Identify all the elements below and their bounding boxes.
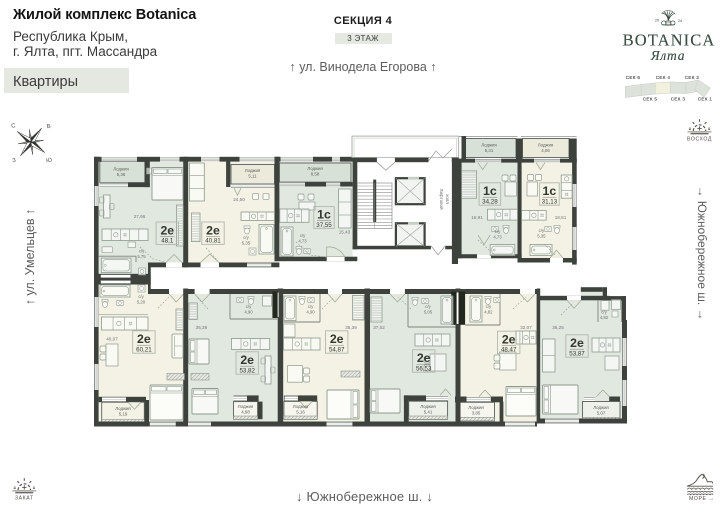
svg-text:8,58: 8,58 bbox=[311, 172, 320, 177]
svg-text:48,47: 48,47 bbox=[501, 347, 517, 354]
svg-text:37,55: 37,55 bbox=[316, 222, 332, 229]
svg-text:с/у: с/у bbox=[138, 294, 144, 299]
svg-text:Лоджия: Лоджия bbox=[593, 405, 609, 410]
svg-text:с/у: с/у bbox=[601, 310, 607, 315]
svg-text:1с: 1с bbox=[317, 208, 331, 222]
svg-text:1с: 1с bbox=[543, 184, 557, 198]
svg-text:16,91: 16,91 bbox=[471, 215, 483, 220]
svg-text:5,20: 5,20 bbox=[137, 299, 146, 304]
svg-text:BOTANICA: BOTANICA bbox=[623, 30, 716, 49]
svg-text:32,07: 32,07 bbox=[520, 325, 532, 330]
svg-text:4,98: 4,98 bbox=[241, 410, 250, 415]
svg-text:5,19: 5,19 bbox=[119, 412, 128, 417]
svg-text:4,06: 4,06 bbox=[541, 148, 550, 153]
svg-text:2е: 2е bbox=[570, 336, 584, 350]
svg-text:5,31: 5,31 bbox=[485, 148, 494, 153]
svg-text:4,82: 4,82 bbox=[484, 309, 493, 314]
svg-text:З: З bbox=[12, 158, 17, 164]
svg-text:Лоджия: Лоджия bbox=[115, 406, 131, 411]
svg-text:СЕК 5: СЕК 5 bbox=[643, 97, 658, 102]
svg-text:с/у: с/у bbox=[425, 304, 431, 309]
svg-text:1с: 1с bbox=[483, 184, 497, 198]
svg-text:4,82: 4,82 bbox=[600, 315, 609, 320]
svg-text:Лоджия: Лоджия bbox=[307, 166, 323, 171]
svg-text:37,52: 37,52 bbox=[373, 325, 385, 330]
svg-text:56,53: 56,53 bbox=[416, 365, 432, 372]
svg-text:СЕК 1: СЕК 1 bbox=[698, 97, 713, 102]
svg-text:с/у: с/у bbox=[243, 235, 249, 240]
svg-text:40,81: 40,81 bbox=[205, 238, 221, 245]
svg-text:2е: 2е bbox=[137, 332, 151, 346]
svg-text:Лоджия: Лоджия bbox=[468, 405, 484, 410]
svg-text:Лоджия: Лоджия bbox=[481, 143, 497, 148]
svg-text:СЕК 4: СЕК 4 bbox=[656, 75, 671, 80]
svg-text:5,11: 5,11 bbox=[248, 174, 257, 179]
svg-text:холл: холл bbox=[445, 194, 450, 204]
svg-text:15,43: 15,43 bbox=[339, 230, 351, 235]
svg-text:35,39: 35,39 bbox=[345, 325, 357, 330]
svg-text:3,85: 3,85 bbox=[472, 411, 481, 416]
svg-text:с/у: с/у bbox=[246, 304, 252, 309]
svg-text:36,25: 36,25 bbox=[552, 325, 564, 330]
svg-text:5,07: 5,07 bbox=[597, 411, 606, 416]
svg-text:5,35: 5,35 bbox=[242, 240, 251, 245]
svg-text:ЗАКАТ: ЗАКАТ bbox=[15, 496, 34, 502]
svg-text:Лоджия: Лоджия bbox=[245, 168, 261, 173]
svg-text:Лоджия: Лоджия bbox=[538, 143, 554, 148]
svg-text:В: В bbox=[47, 124, 52, 130]
svg-text:2е: 2е bbox=[206, 223, 220, 237]
svg-text:2е: 2е bbox=[417, 351, 431, 365]
svg-text:53,82: 53,82 bbox=[239, 367, 255, 374]
svg-text:40,07: 40,07 bbox=[106, 337, 118, 342]
svg-text:с/у: с/у bbox=[539, 228, 545, 233]
svg-text:ВОСХОД: ВОСХОД bbox=[687, 137, 712, 143]
svg-text:53,87: 53,87 bbox=[569, 350, 585, 357]
svg-text:СЕК 2: СЕК 2 bbox=[685, 75, 700, 80]
svg-text:Лоджия: Лоджия bbox=[238, 404, 254, 409]
svg-text:54,87: 54,87 bbox=[329, 346, 345, 353]
svg-text:МОРЕ →: МОРЕ → bbox=[689, 496, 715, 502]
svg-text:5,36: 5,36 bbox=[117, 172, 126, 177]
svg-text:2е: 2е bbox=[240, 353, 254, 367]
svg-text:с/у: с/у bbox=[139, 249, 145, 254]
svg-text:2е: 2е bbox=[502, 333, 516, 347]
svg-text:35,39: 35,39 bbox=[196, 325, 208, 330]
svg-text:34,28: 34,28 bbox=[482, 198, 498, 205]
svg-text:2е: 2е bbox=[330, 332, 344, 346]
svg-text:4,90: 4,90 bbox=[306, 309, 315, 314]
svg-text:5,05: 5,05 bbox=[424, 309, 433, 314]
svg-text:с/у: с/у bbox=[300, 233, 306, 238]
svg-text:24: 24 bbox=[678, 19, 682, 23]
svg-text:С: С bbox=[11, 123, 16, 130]
svg-text:Лифтовой: Лифтовой bbox=[439, 189, 445, 210]
svg-text:5,35: 5,35 bbox=[537, 233, 546, 238]
svg-text:5,16: 5,16 bbox=[296, 410, 305, 415]
svg-text:4,73: 4,73 bbox=[493, 234, 502, 239]
svg-text:с/у: с/у bbox=[308, 304, 314, 309]
svg-text:Ю: Ю bbox=[46, 158, 53, 165]
svg-text:СЕК 6: СЕК 6 bbox=[626, 75, 641, 80]
svg-text:4,73: 4,73 bbox=[298, 238, 307, 243]
svg-text:СЕК 3: СЕК 3 bbox=[671, 97, 686, 102]
svg-text:24,50: 24,50 bbox=[233, 197, 245, 202]
svg-text:60,21: 60,21 bbox=[136, 346, 152, 353]
svg-text:с/у: с/у bbox=[495, 229, 501, 234]
svg-text:20: 20 bbox=[655, 19, 659, 23]
svg-text:5,75: 5,75 bbox=[137, 254, 146, 259]
svg-text:18,51: 18,51 bbox=[555, 215, 567, 220]
svg-text:с/у: с/у bbox=[486, 304, 492, 309]
svg-text:Лоджия: Лоджия bbox=[293, 404, 309, 409]
svg-text:Лоджия: Лоджия bbox=[420, 404, 436, 409]
svg-text:5,41: 5,41 bbox=[424, 410, 433, 415]
svg-text:31,13: 31,13 bbox=[542, 198, 558, 205]
svg-text:4,90: 4,90 bbox=[244, 309, 253, 314]
svg-text:48,1: 48,1 bbox=[161, 238, 174, 245]
svg-text:Лоджия: Лоджия bbox=[113, 167, 129, 172]
svg-text:27,66: 27,66 bbox=[134, 214, 146, 219]
svg-text:2е: 2е bbox=[160, 223, 174, 237]
svg-text:Ялта: Ялта bbox=[650, 48, 686, 63]
